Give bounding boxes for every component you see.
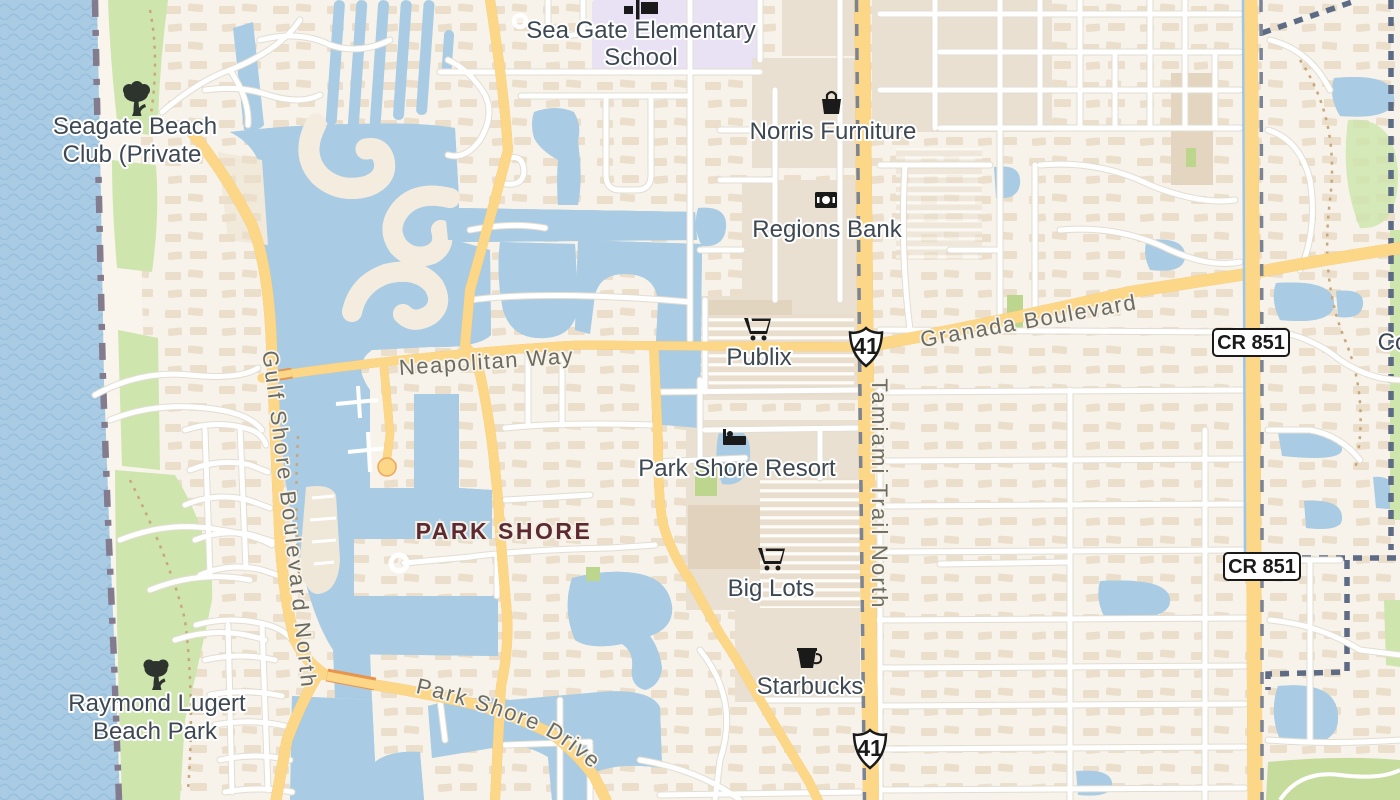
svg-text:41: 41 [857, 735, 883, 761]
svg-text:Starbucks: Starbucks [757, 673, 864, 700]
svg-text:CR 851: CR 851 [1217, 332, 1285, 354]
svg-text:Regions Bank: Regions Bank [752, 216, 902, 243]
svg-text:Sea Gate Elementary: Sea Gate Elementary [526, 17, 755, 44]
svg-text:School: School [604, 44, 677, 71]
svg-text:Beach Park: Beach Park [93, 718, 218, 745]
svg-text:Norris Furniture: Norris Furniture [750, 118, 917, 145]
svg-text:41: 41 [853, 333, 879, 359]
svg-text:PARK SHORE: PARK SHORE [416, 518, 593, 544]
svg-text:Co: Co [1378, 329, 1400, 356]
svg-text:Tamiami Trail North: Tamiami Trail North [867, 378, 892, 609]
svg-text:Park Shore Resort: Park Shore Resort [638, 455, 836, 482]
svg-text:CR 851: CR 851 [1228, 556, 1296, 578]
svg-text:Raymond Lugert: Raymond Lugert [68, 690, 246, 717]
svg-text:Club (Private: Club (Private [63, 141, 202, 168]
svg-text:Seagate Beach: Seagate Beach [53, 113, 217, 140]
svg-text:Publix: Publix [726, 344, 791, 371]
svg-text:Big Lots: Big Lots [728, 575, 815, 602]
